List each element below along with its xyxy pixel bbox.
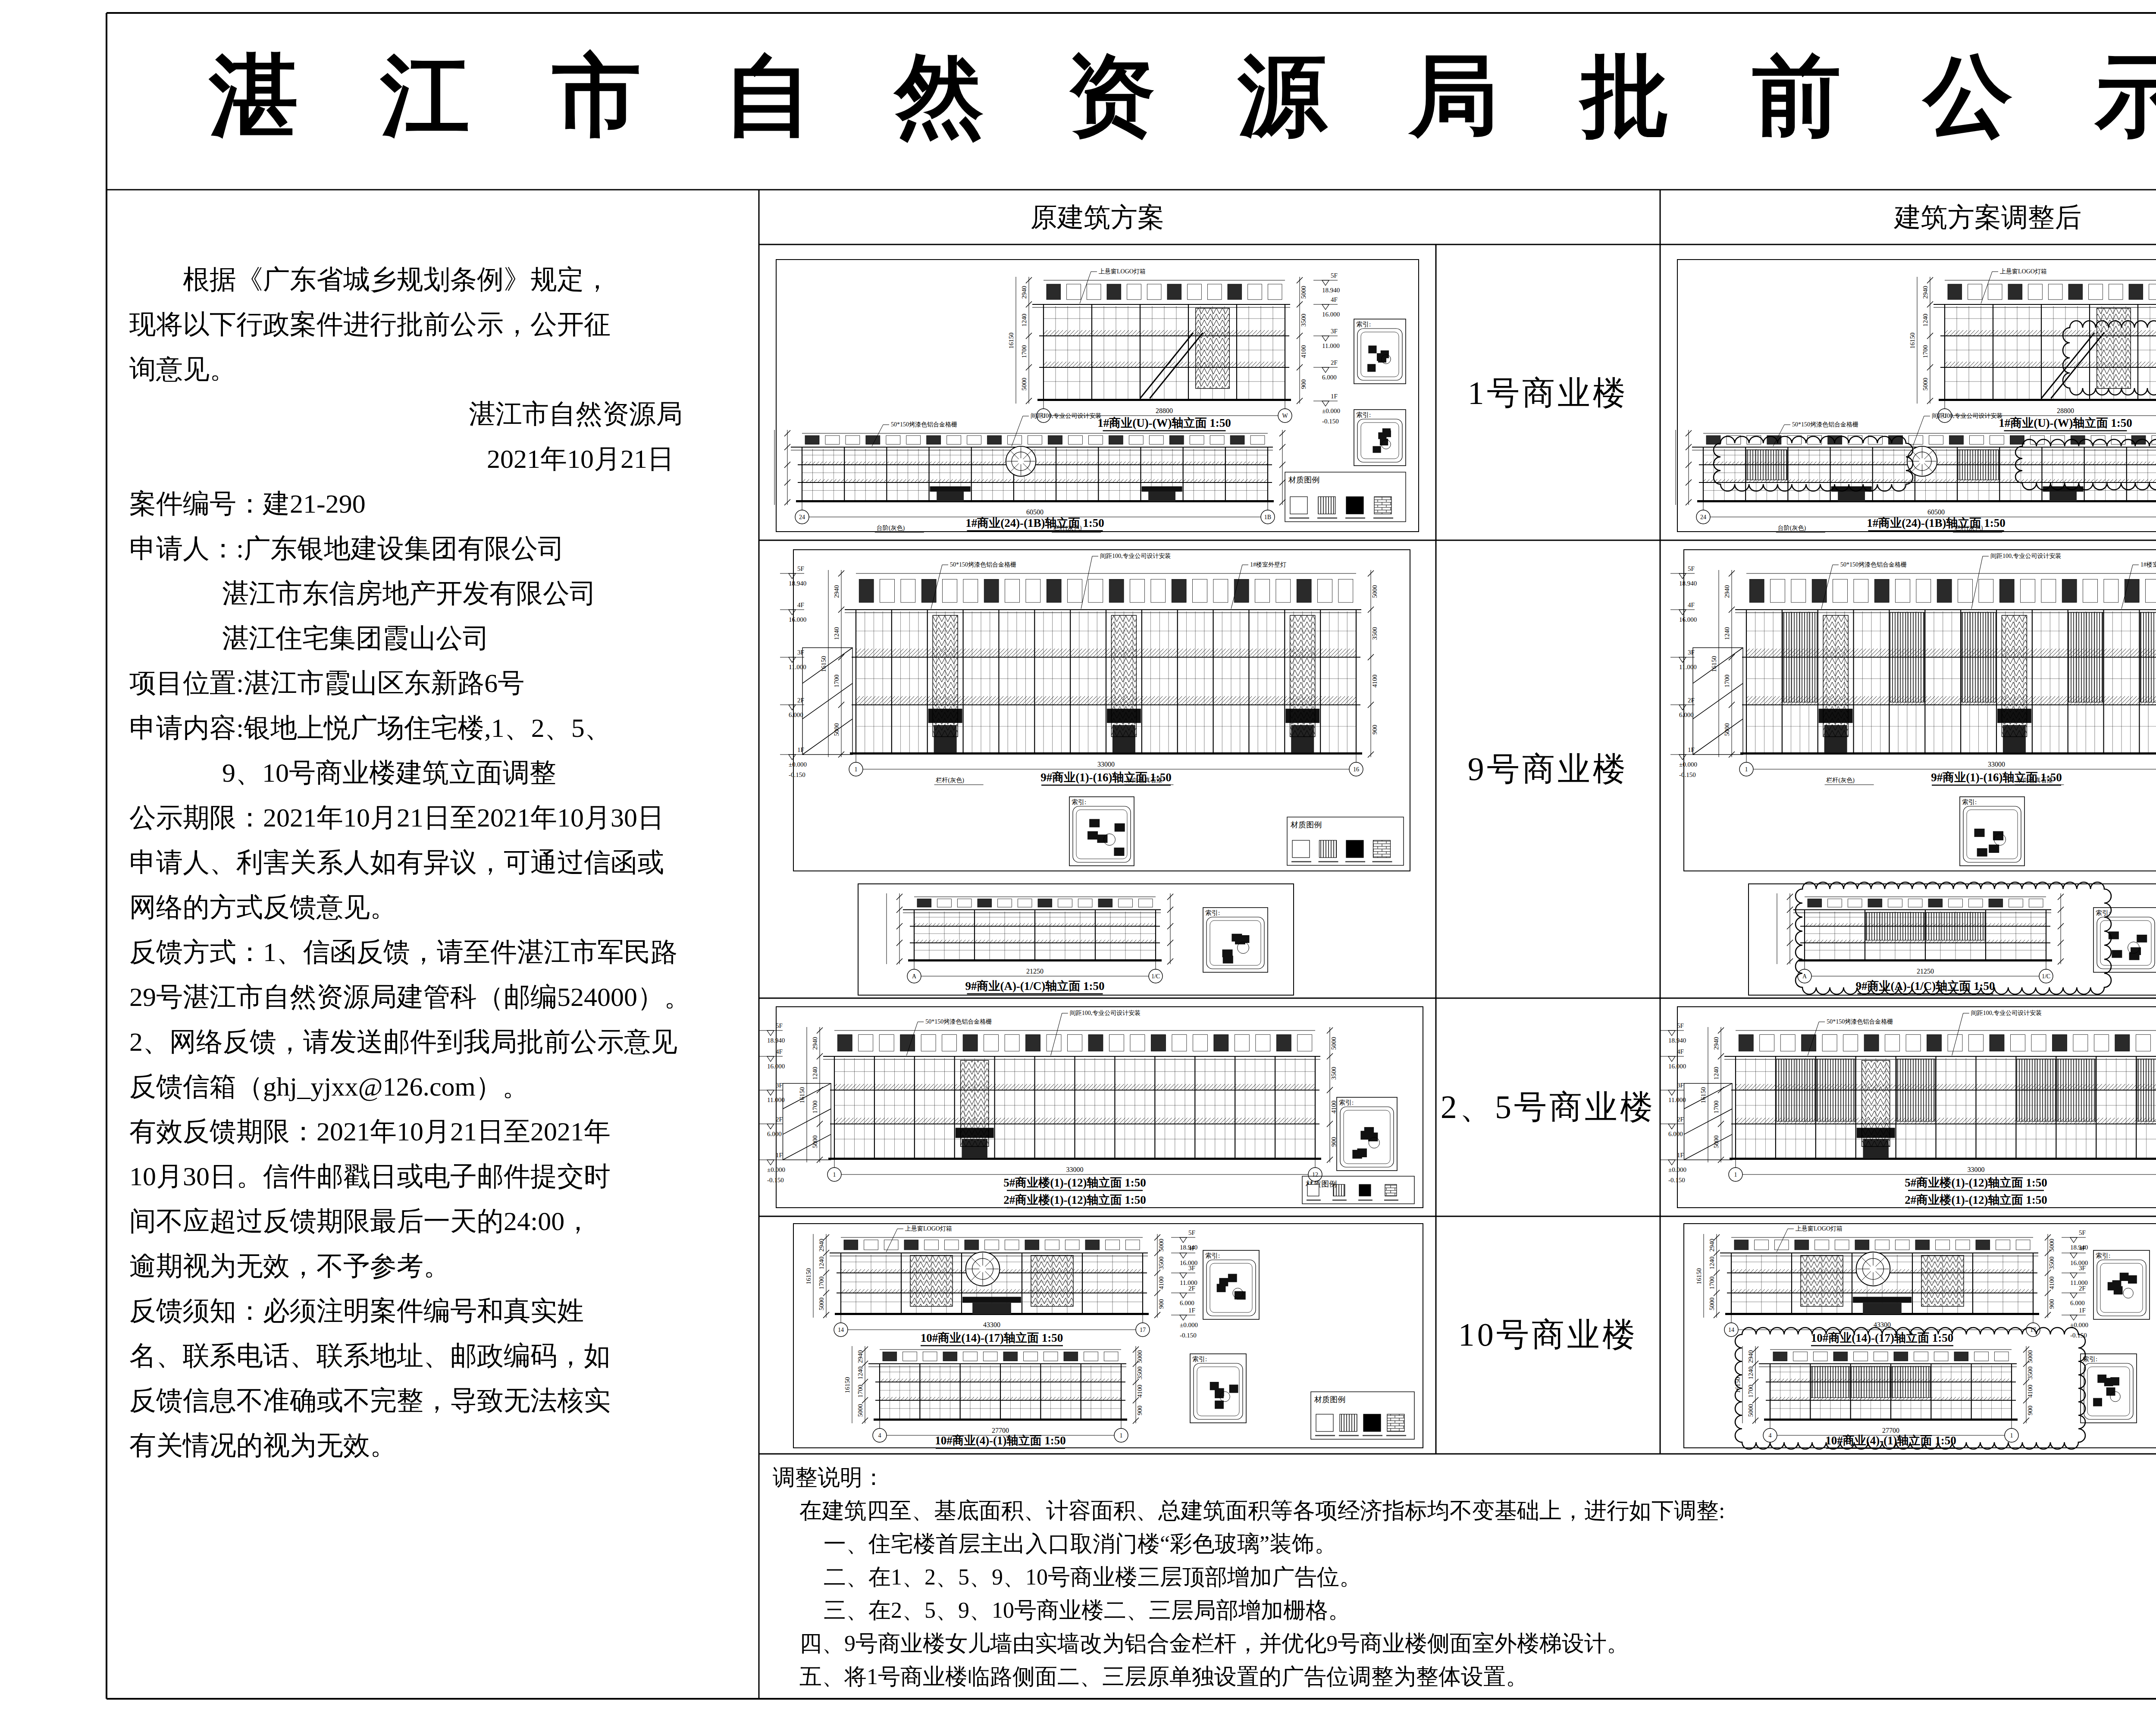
svg-text:±0.000: ±0.000: [1180, 1322, 1198, 1328]
drawing-caption: 1#商业(U)-(W)轴立面 1:50: [1999, 417, 2132, 429]
svg-text:±0.000: ±0.000: [1679, 761, 1697, 768]
svg-text:60500: 60500: [1927, 508, 1945, 516]
drawing-cell: 2940124017005000500035004100900161505F18…: [793, 1224, 1423, 1448]
svg-text:2F: 2F: [776, 1116, 783, 1123]
key-plan-inset: 索引:: [1354, 319, 1406, 384]
svg-text:4F: 4F: [1688, 601, 1695, 608]
svg-text:18.940: 18.940: [767, 1037, 785, 1044]
svg-text:5000: 5000: [833, 723, 840, 736]
notice-text-line: 10月30日。信件邮戳日或电子邮件提交时: [129, 1154, 749, 1199]
svg-text:6.000: 6.000: [1322, 374, 1337, 381]
svg-text:索引:: 索引:: [1205, 1252, 1220, 1259]
svg-text:33000: 33000: [1988, 761, 2005, 768]
key-plan-inset: 索引:: [1069, 797, 1134, 866]
svg-text:5F: 5F: [776, 1022, 783, 1029]
svg-text:索引:: 索引:: [2096, 909, 2110, 916]
drawing-cell: 2940124017005000500035004100900161505F18…: [1684, 1224, 2156, 1449]
svg-text:1F: 1F: [1331, 393, 1338, 400]
svg-text:50*150烤漆色铝合金格栅: 50*150烤漆色铝合金格栅: [1792, 421, 1858, 428]
svg-text:11.000: 11.000: [1668, 1096, 1686, 1103]
svg-text:16150: 16150: [820, 656, 827, 672]
svg-text:16.000: 16.000: [789, 616, 806, 623]
svg-text:3500: 3500: [1371, 627, 1378, 640]
svg-text:2940: 2940: [1021, 286, 1028, 299]
drawing-caption: 10#商业(14)-(17)轴立面 1:50: [921, 1331, 1063, 1344]
svg-text:2940: 2940: [1713, 1037, 1720, 1050]
svg-text:4F: 4F: [1188, 1245, 1195, 1252]
svg-text:-0.150: -0.150: [1679, 771, 1696, 778]
svg-text:1700: 1700: [857, 1385, 864, 1398]
svg-text:索引:: 索引:: [1339, 1099, 1354, 1106]
notes-intro: 在建筑四至、基底面积、计容面积、总建筑面积等各项经济指标均不变基础上，进行如下调…: [773, 1494, 2156, 1527]
svg-text:60500: 60500: [1026, 508, 1044, 516]
svg-text:14: 14: [1728, 1327, 1734, 1333]
svg-text:-0.150: -0.150: [1668, 1177, 1685, 1184]
notice-text-line: 湛江市东信房地产开发有限公司: [129, 571, 749, 616]
svg-text:50*150烤漆色铝合金格栅: 50*150烤漆色铝合金格栅: [925, 1018, 992, 1025]
svg-text:1240: 1240: [1724, 627, 1730, 640]
svg-text:2F: 2F: [2079, 1285, 2086, 1292]
svg-text:50*150烤漆色铝合金格栅: 50*150烤漆色铝合金格栅: [1827, 1018, 1893, 1025]
notice-text-line: 2021年10月21日: [129, 436, 749, 481]
svg-text:5F: 5F: [1331, 272, 1338, 279]
svg-text:4100: 4100: [1371, 675, 1378, 688]
svg-text:24: 24: [1700, 514, 1706, 520]
svg-text:1/C: 1/C: [1151, 973, 1160, 980]
svg-text:900: 900: [2048, 1299, 2055, 1309]
notice-text-line: 间不应超过反馈期限最后一天的24:00，: [129, 1199, 749, 1243]
notice-text-line: 2、网络反馈，请发送邮件到我局批前公示意见: [129, 1019, 749, 1064]
svg-text:台阶(灰色): 台阶(灰色): [877, 525, 905, 532]
svg-text:1700: 1700: [812, 1101, 818, 1114]
svg-text:索引:: 索引:: [1356, 411, 1371, 418]
notice-text-line: 询意见。: [129, 347, 749, 391]
notice-text-line: 反馈信箱（ghj_yjxx@126.com）。: [129, 1064, 749, 1109]
svg-text:2940: 2940: [1922, 286, 1929, 299]
svg-text:A: A: [912, 973, 917, 980]
drawing-caption: 9#商业(1)-(16)轴立面 1:50: [1931, 771, 2062, 784]
svg-text:上悬窗LOGO灯箱: 上悬窗LOGO灯箱: [905, 1225, 952, 1232]
drawing-caption: 9#商业(A)-(1/C)轴立面 1:50: [965, 980, 1104, 993]
svg-text:4100: 4100: [1300, 345, 1307, 358]
svg-text:5000: 5000: [1330, 1037, 1337, 1050]
column-header-adjusted: 建筑方案调整后: [1894, 199, 2081, 235]
notice-text-line: 现将以下行政案件进行批前公示，公开征: [129, 302, 749, 347]
key-plan-inset: 索引:: [1960, 797, 2024, 866]
drawing-cells: 2940124017005000500035004100900161505F18…: [758, 260, 2156, 1449]
svg-text:5000: 5000: [1021, 378, 1028, 391]
drawing-caption: 5#商业楼(1)-(12)轴立面 1:50: [1905, 1176, 2047, 1189]
svg-text:16150: 16150: [1008, 332, 1015, 349]
material-legend: 材质图例: [1287, 817, 1404, 865]
notes-title: 调整说明：: [773, 1461, 2156, 1494]
drawing-cell: 2940124017005000500035004100900161505F18…: [780, 550, 1410, 871]
svg-text:4100: 4100: [2048, 1277, 2055, 1290]
adjustment-notes: 调整说明： 在建筑四至、基底面积、计容面积、总建筑面积等各项经济指标均不变基础上…: [773, 1461, 2156, 1693]
svg-text:900: 900: [1136, 1406, 1143, 1415]
svg-text:6.000: 6.000: [2070, 1300, 2085, 1306]
svg-text:5F: 5F: [1188, 1229, 1195, 1236]
svg-text:A: A: [1802, 973, 1807, 980]
svg-text:-0.150: -0.150: [1180, 1332, 1197, 1339]
medallion-ornament: [1907, 446, 1937, 476]
drawing-frame: [776, 260, 1419, 532]
key-plan-inset: 索引:: [1337, 1097, 1397, 1171]
svg-text:栏杆(灰色): 栏杆(灰色): [1826, 777, 1855, 784]
svg-text:1240: 1240: [818, 1256, 825, 1269]
svg-text:4100: 4100: [1136, 1385, 1143, 1398]
notice-text-line: 湛江市自然资源局: [129, 391, 749, 436]
key-plan-inset: 索引:: [2093, 908, 2156, 972]
svg-text:4F: 4F: [797, 601, 804, 608]
svg-text:6.000: 6.000: [1668, 1131, 1683, 1137]
svg-text:21250: 21250: [1026, 968, 1044, 975]
page-title: 湛 江 市 自 然 资 源 局 批 前 公 示: [108, 37, 2156, 157]
row-label: 9号商业楼: [1468, 747, 1628, 792]
svg-text:5000: 5000: [2027, 1350, 2034, 1363]
notice-sheet: 2940124017005000500035004100900161505F18…: [0, 0, 2156, 1713]
drawing-caption: 1#商业(24)-(1B)轴立面 1:50: [965, 517, 1104, 529]
svg-text:6.000: 6.000: [1180, 1300, 1194, 1306]
svg-text:1240: 1240: [857, 1366, 864, 1379]
svg-text:16150: 16150: [844, 1377, 851, 1394]
svg-text:1240: 1240: [812, 1067, 818, 1080]
svg-text:1240: 1240: [1708, 1256, 1715, 1269]
svg-text:间距100,专业公司设计安装: 间距100,专业公司设计安装: [1990, 553, 2062, 559]
svg-text:索引:: 索引:: [1205, 909, 1220, 916]
svg-text:5000: 5000: [1371, 585, 1378, 598]
row-label: 2、5号商业楼: [1441, 1085, 1656, 1130]
svg-text:11.000: 11.000: [767, 1096, 785, 1103]
column-header-original: 原建筑方案: [1031, 199, 1164, 235]
svg-text:4100: 4100: [2027, 1385, 2034, 1398]
elevation-drawing: 2940124017005000500035004100900161505F18…: [1660, 1010, 2156, 1208]
svg-text:5000: 5000: [1158, 1239, 1165, 1252]
svg-text:1700: 1700: [1922, 345, 1929, 358]
svg-text:3500: 3500: [1300, 314, 1307, 327]
drawing-cell: 2940124017005000500035004100900161505F18…: [758, 1007, 1423, 1208]
svg-text:1: 1: [1120, 1432, 1123, 1439]
elevation-drawing: 2940124017005000500035004100900161505F18…: [758, 1010, 1337, 1208]
notice-text-line: 湛江住宅集团霞山公司: [129, 616, 749, 661]
svg-text:11.000: 11.000: [789, 664, 806, 670]
svg-text:材质图例: 材质图例: [1314, 1395, 1345, 1404]
drawing-cell: A1/C212509#商业(A)-(1/C)轴立面 1:50索引:: [1749, 882, 2156, 995]
svg-text:上悬窗LOGO灯箱: 上悬窗LOGO灯箱: [1099, 268, 1146, 275]
svg-text:43300: 43300: [983, 1321, 1000, 1328]
svg-text:5000: 5000: [1747, 1404, 1754, 1417]
drawing-caption: 1#商业(24)-(1B)轴立面 1:50: [1867, 517, 2006, 529]
notes-item: 四、9号商业楼女儿墙由实墙改为铝合金栏杆，并优化9号商业楼侧面室外楼梯设计。: [773, 1627, 2156, 1660]
svg-text:5F: 5F: [797, 565, 804, 572]
svg-text:1700: 1700: [1713, 1101, 1720, 1114]
svg-text:14: 14: [838, 1327, 844, 1333]
elevation-drawing: 2940124017005000500035004100900161505F18…: [1008, 268, 1340, 431]
svg-text:1700: 1700: [1708, 1277, 1715, 1290]
medallion-ornament: [1856, 1252, 1890, 1286]
drawing-cell: 2940124017005000500035004100900161505F18…: [1676, 260, 2156, 532]
svg-text:900: 900: [1330, 1137, 1337, 1147]
svg-text:900: 900: [1158, 1299, 1165, 1309]
svg-text:16150: 16150: [1700, 1087, 1707, 1103]
svg-text:2F: 2F: [797, 697, 804, 704]
svg-text:16150: 16150: [1695, 1268, 1702, 1284]
svg-text:6.000: 6.000: [1679, 711, 1694, 718]
svg-text:2F: 2F: [1677, 1116, 1684, 1123]
notice-text-line: 项目位置:湛江市霞山区东新路6号: [129, 661, 749, 705]
svg-text:4: 4: [878, 1432, 881, 1439]
svg-text:间距100,专业公司设计安装: 间距100,专业公司设计安装: [1100, 553, 1171, 559]
svg-text:1: 1: [2010, 1432, 2013, 1439]
svg-text:16.000: 16.000: [1679, 616, 1697, 623]
svg-text:材质图例: 材质图例: [1288, 476, 1319, 484]
svg-text:5F: 5F: [1677, 1022, 1684, 1029]
svg-text:3500: 3500: [2027, 1366, 2034, 1379]
svg-text:3500: 3500: [1330, 1067, 1337, 1080]
svg-text:2940: 2940: [1708, 1239, 1715, 1252]
svg-text:索引:: 索引:: [1356, 321, 1371, 328]
svg-text:12: 12: [1312, 1171, 1318, 1178]
svg-text:50*150烤漆色铝合金格栅: 50*150烤漆色铝合金格栅: [950, 561, 1016, 568]
svg-text:33000: 33000: [1097, 761, 1115, 768]
notice-text-line: 反馈信息不准确或不完整，导致无法核实: [129, 1378, 749, 1423]
notice-text-line: 申请人、利害关系人如有异议，可通过信函或: [129, 840, 749, 885]
svg-text:5000: 5000: [857, 1404, 864, 1417]
svg-text:3F: 3F: [2079, 1265, 2086, 1271]
elevation-drawing: 2940124017005000500035004100900161505F18…: [1670, 553, 2156, 785]
notice-text-line: 反馈须知：必须注明案件编号和真实姓: [129, 1288, 749, 1333]
medallion-ornament: [1006, 446, 1036, 476]
svg-text:3F: 3F: [1688, 649, 1695, 656]
drawing-cell: A1/C212509#商业(A)-(1/C)轴立面 1:50索引:: [858, 884, 1294, 995]
svg-text:2940: 2940: [833, 585, 840, 598]
svg-text:16150: 16150: [1711, 656, 1717, 672]
svg-text:28800: 28800: [2057, 407, 2074, 414]
svg-text:1240: 1240: [833, 627, 840, 640]
notes-item: 二、在1、2、5、9、10号商业楼三层顶部增加广告位。: [773, 1560, 2156, 1594]
svg-text:16: 16: [1353, 766, 1359, 773]
svg-text:4F: 4F: [1677, 1048, 1684, 1055]
svg-text:1240: 1240: [1747, 1366, 1754, 1379]
svg-text:-0.150: -0.150: [1322, 418, 1339, 425]
notice-text-line: 网络的方式反馈意见。: [129, 885, 749, 930]
svg-text:1F: 1F: [1188, 1307, 1195, 1314]
svg-text:2940: 2940: [818, 1239, 825, 1252]
svg-text:1700: 1700: [1747, 1385, 1754, 1398]
elevation-drawing: 2940124017005000500035004100900161504127…: [844, 1346, 1143, 1448]
notes-item: 一、住宅楼首层主出入口取消门楼“彩色玻璃”装饰。: [773, 1527, 2156, 1560]
svg-text:1/C: 1/C: [2042, 973, 2050, 980]
svg-text:4F: 4F: [2079, 1245, 2086, 1252]
svg-text:4: 4: [1769, 1432, 1772, 1439]
svg-text:33000: 33000: [1968, 1166, 1985, 1173]
material-legend: 材质图例: [1285, 472, 1406, 522]
svg-text:材质图例: 材质图例: [1290, 820, 1322, 829]
svg-text:3500: 3500: [1136, 1366, 1143, 1379]
notice-text-line: 9、10号商业楼建筑立面调整: [129, 750, 749, 795]
drawing-caption: 10#商业(4)-(1)轴立面 1:50: [935, 1434, 1066, 1447]
svg-text:50*150烤漆色铝合金格栅: 50*150烤漆色铝合金格栅: [1840, 561, 1907, 568]
svg-text:-0.150: -0.150: [767, 1177, 784, 1184]
svg-text:3500: 3500: [2048, 1256, 2055, 1269]
drawing-cell: 2940124017005000500035004100900161505F18…: [1670, 550, 2156, 871]
drawing-caption: 1#商业(U)-(W)轴立面 1:50: [1097, 417, 1231, 429]
material-legend: 材质图例: [1311, 1392, 1414, 1439]
svg-text:3F: 3F: [1188, 1265, 1195, 1271]
notice-text-line: 逾期视为无效，不予参考。: [129, 1243, 749, 1288]
svg-text:27700: 27700: [992, 1427, 1009, 1434]
svg-text:900: 900: [2027, 1406, 2034, 1415]
svg-text:间距100,专业公司设计安装: 间距100,专业公司设计安装: [1031, 413, 1102, 419]
svg-text:18.940: 18.940: [789, 580, 806, 587]
svg-text:1: 1: [855, 766, 858, 773]
key-plan-inset: 索引:: [1354, 410, 1406, 466]
notice-text-line: 案件编号：建21-290: [129, 481, 749, 526]
svg-text:±0.000: ±0.000: [767, 1166, 785, 1173]
elevation-drawing: 2940124017005000500035004100900161505F18…: [805, 1225, 1198, 1346]
svg-text:5F: 5F: [1688, 565, 1695, 572]
drawing-caption: 9#商业(1)-(16)轴立面 1:50: [1040, 771, 1172, 784]
svg-text:5000: 5000: [1724, 723, 1730, 736]
svg-text:1240: 1240: [1713, 1067, 1720, 1080]
svg-text:6.000: 6.000: [789, 711, 803, 718]
svg-text:索引:: 索引:: [1192, 1356, 1207, 1362]
svg-text:1F: 1F: [776, 1152, 783, 1159]
notes-items: 一、住宅楼首层主出入口取消门楼“彩色玻璃”装饰。二、在1、2、5、9、10号商业…: [773, 1527, 2156, 1693]
svg-text:3F: 3F: [797, 649, 804, 656]
notice-text-line: 反馈方式：1、信函反馈，请至件湛江市军民路: [129, 930, 749, 974]
svg-text:21250: 21250: [1917, 968, 1934, 975]
svg-text:2940: 2940: [857, 1350, 864, 1363]
drawing-cell: 2940124017005000500035004100900161505F18…: [1660, 1007, 2156, 1208]
svg-text:1700: 1700: [1021, 345, 1028, 358]
svg-text:上悬窗LOGO灯箱: 上悬窗LOGO灯箱: [2000, 268, 2047, 275]
notice-text-line: 29号湛江市自然资源局建管科（邮编524000）。: [129, 974, 749, 1019]
svg-text:1700: 1700: [1724, 675, 1730, 688]
notice-text-line: 有效反馈期限：2021年10月21日至2021年: [129, 1109, 749, 1154]
svg-text:1B: 1B: [1264, 514, 1271, 520]
svg-text:±0.000: ±0.000: [789, 761, 807, 768]
svg-text:11.000: 11.000: [1322, 342, 1340, 349]
svg-text:16.000: 16.000: [1668, 1063, 1686, 1070]
drawing-caption: 2#商业楼(1)-(12)轴立面 1:50: [1905, 1193, 2047, 1206]
svg-text:18.940: 18.940: [1668, 1037, 1686, 1044]
svg-text:2F: 2F: [1331, 359, 1338, 366]
svg-text:16150: 16150: [805, 1268, 812, 1284]
drawing-cell: 2940124017005000500035004100900161505F18…: [774, 260, 1419, 532]
svg-text:16150: 16150: [1909, 332, 1916, 349]
svg-text:5000: 5000: [812, 1135, 818, 1148]
svg-text:4F: 4F: [776, 1048, 783, 1055]
drawing-caption: 5#商业楼(1)-(12)轴立面 1:50: [1003, 1176, 1146, 1189]
svg-text:-0.150: -0.150: [789, 771, 805, 778]
svg-text:1240: 1240: [1922, 314, 1929, 327]
svg-text:2F: 2F: [1188, 1285, 1195, 1292]
svg-text:3F: 3F: [1677, 1082, 1684, 1089]
drawing-caption: 10#商业(4)-(1)轴立面 1:50: [1825, 1434, 1956, 1447]
row-label: 1号商业楼: [1468, 371, 1628, 416]
key-plan-inset: 索引:: [1203, 1250, 1259, 1319]
svg-text:1#楼室外壁灯: 1#楼室外壁灯: [1250, 561, 1286, 568]
svg-text:3F: 3F: [776, 1082, 783, 1089]
svg-text:W: W: [1282, 413, 1288, 419]
svg-text:5000: 5000: [818, 1297, 825, 1310]
svg-text:1#楼室外壁灯: 1#楼室外壁灯: [2140, 561, 2156, 568]
svg-text:2940: 2940: [812, 1037, 818, 1050]
svg-text:5000: 5000: [1136, 1350, 1143, 1363]
svg-text:索引:: 索引:: [2096, 1252, 2110, 1259]
svg-text:1: 1: [1745, 766, 1748, 773]
svg-text:5000: 5000: [1922, 378, 1929, 391]
svg-text:5F: 5F: [2079, 1229, 2086, 1236]
notice-text-line: 名、联系电话、联系地址、邮政编码，如: [129, 1333, 749, 1378]
svg-text:1700: 1700: [833, 675, 840, 688]
svg-text:11.000: 11.000: [1679, 664, 1697, 670]
svg-text:间距100,专业公司设计安装: 间距100,专业公司设计安装: [1932, 413, 2003, 419]
svg-text:18.940: 18.940: [1322, 287, 1340, 294]
svg-text:50*150烤漆色铝合金格栅: 50*150烤漆色铝合金格栅: [891, 421, 957, 428]
svg-text:2940: 2940: [1747, 1350, 1754, 1363]
key-plan-inset: 索引:: [2081, 1354, 2137, 1423]
svg-text:4F: 4F: [1331, 296, 1338, 303]
notice-text-line: 公示期限：2021年10月21日至2021年10月30日: [129, 795, 749, 840]
svg-text:5000: 5000: [1713, 1135, 1720, 1148]
svg-text:33000: 33000: [1066, 1166, 1084, 1173]
svg-text:27700: 27700: [1882, 1427, 1899, 1434]
notice-text-line: 有关情况的视为无效。: [129, 1423, 749, 1468]
svg-text:28800: 28800: [1156, 407, 1173, 414]
svg-text:2940: 2940: [1724, 585, 1730, 598]
svg-text:16.000: 16.000: [767, 1063, 785, 1070]
svg-text:1F: 1F: [797, 746, 804, 753]
svg-text:5000: 5000: [1300, 286, 1307, 299]
key-plan-inset: 索引:: [1190, 1354, 1246, 1423]
svg-text:索引:: 索引:: [1072, 799, 1086, 805]
svg-text:900: 900: [1371, 725, 1378, 735]
svg-text:1F: 1F: [1688, 746, 1695, 753]
svg-text:±0.000: ±0.000: [1668, 1166, 1686, 1173]
svg-text:16150: 16150: [799, 1087, 805, 1103]
svg-text:上悬窗LOGO灯箱: 上悬窗LOGO灯箱: [1796, 1225, 1843, 1232]
svg-text:1: 1: [1734, 1171, 1737, 1178]
notice-text-line: 申请内容:银地上悦广场住宅楼,1、2、5、: [129, 705, 749, 750]
svg-text:4100: 4100: [1158, 1277, 1165, 1290]
svg-text:1240: 1240: [1021, 314, 1028, 327]
svg-text:4100: 4100: [1330, 1101, 1337, 1114]
svg-text:17: 17: [1140, 1327, 1146, 1333]
svg-text:间距100,专业公司设计安装: 间距100,专业公司设计安装: [1070, 1010, 1141, 1016]
drawing-caption: 2#商业楼(1)-(12)轴立面 1:50: [1003, 1193, 1146, 1206]
svg-text:间距100,专业公司设计安装: 间距100,专业公司设计安装: [1971, 1010, 2042, 1016]
key-plan-inset: 索引:: [2093, 1250, 2150, 1319]
elevation-drawing: A1/C212509#商业(A)-(1/C)轴立面 1:50: [887, 893, 1173, 994]
notice-text-line: 根据《广东省城乡规划条例》规定，: [129, 257, 749, 302]
notes-item: 三、在2、5、9、10号商业楼二、三层局部增加栅格。: [773, 1594, 2156, 1627]
elevation-drawing: 2940124017005000500035004100900161504127…: [1734, 1346, 2034, 1448]
svg-text:24: 24: [799, 514, 805, 520]
svg-text:1F: 1F: [2079, 1307, 2086, 1314]
row-label: 10号商业楼: [1458, 1313, 1638, 1357]
elevation-drawing: A1/C212509#商业(A)-(1/C)轴立面 1:50: [1777, 893, 2064, 994]
svg-text:900: 900: [1300, 379, 1307, 389]
svg-text:5000: 5000: [1708, 1297, 1715, 1310]
svg-text:16.000: 16.000: [1322, 311, 1340, 318]
svg-text:2F: 2F: [1688, 697, 1695, 704]
elevation-drawing: 2940124017005000500035004100900161505F18…: [1909, 268, 2156, 431]
svg-text:栏杆(灰色): 栏杆(灰色): [936, 777, 965, 784]
elevation-drawing: 2940124017005000500035004100900161505F18…: [780, 553, 1378, 785]
svg-text:1: 1: [833, 1171, 836, 1178]
